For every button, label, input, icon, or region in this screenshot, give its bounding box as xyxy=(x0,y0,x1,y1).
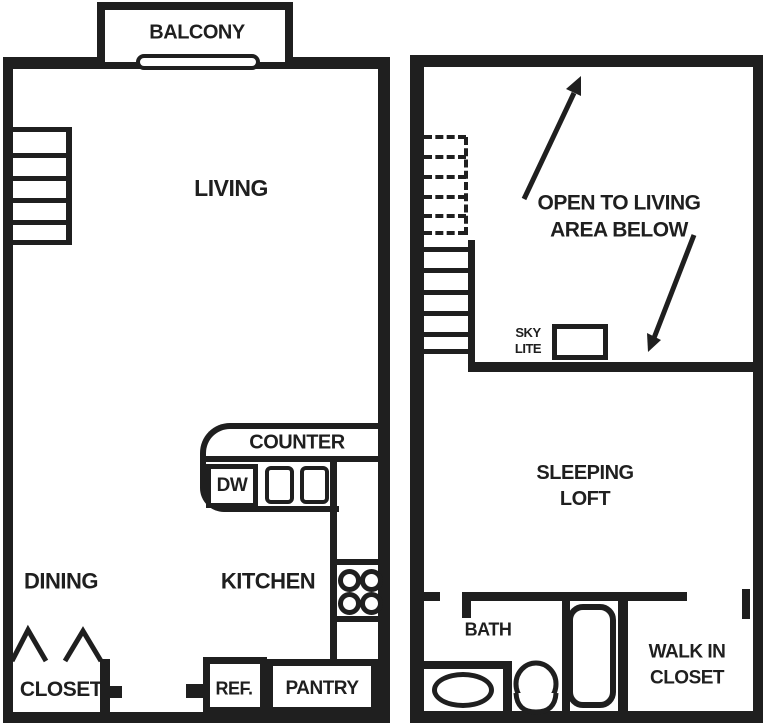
stairs-upper-dashed xyxy=(424,214,466,218)
door-jamb xyxy=(186,684,203,698)
stair-tread xyxy=(13,198,66,203)
door-jamb xyxy=(742,589,750,619)
refrigerator-label: REF. xyxy=(215,680,252,699)
stove-burner xyxy=(360,569,383,592)
open-to-living-label: OPEN TO LIVING AREA BELOW xyxy=(538,190,701,245)
stairs-upper-dashed xyxy=(424,135,466,139)
bath-counter-edge xyxy=(503,661,512,712)
closet-label: CLOSET xyxy=(20,679,102,701)
stair-tread xyxy=(13,153,66,158)
bath-label: BATH xyxy=(465,621,512,640)
balcony-label: BALCONY xyxy=(149,23,244,44)
stove-burner xyxy=(338,569,361,592)
stair-tread xyxy=(13,220,66,225)
walk-in-closet-label: WALK IN CLOSET xyxy=(649,639,726,690)
bath-wall-stub xyxy=(424,592,440,601)
stairs-upper-dashed xyxy=(424,175,466,179)
stair-tread xyxy=(424,332,468,337)
loft-wall xyxy=(468,362,753,372)
floor-plan-canvas: BALCONY LIVING COUNTER DW KITCHEN DINING… xyxy=(0,0,765,723)
stair-tread xyxy=(13,176,66,181)
sleeping-loft-label: SLEEPING LOFT xyxy=(536,460,633,512)
counter-strip-wall xyxy=(330,458,337,662)
dining-label: DINING xyxy=(24,569,98,592)
door-jamb xyxy=(462,592,471,618)
counter-label: COUNTER xyxy=(249,433,344,454)
stairs-lower xyxy=(13,127,72,245)
bath-wall xyxy=(471,592,687,601)
skylight-box xyxy=(552,324,608,360)
bath-sink xyxy=(432,672,494,708)
stairs-upper xyxy=(424,247,468,354)
stair-tread xyxy=(424,290,468,295)
stove-divider xyxy=(337,559,378,565)
stairs-upper-dashed-edge xyxy=(464,137,468,235)
stairs-upper-edge xyxy=(468,240,475,372)
kitchen-label: KITCHEN xyxy=(221,569,315,592)
stairs-upper-dashed xyxy=(424,195,466,199)
stove-divider xyxy=(337,616,378,622)
stair-tread xyxy=(424,311,468,316)
closet-divider-wall xyxy=(618,598,628,712)
sink-basin xyxy=(265,466,294,504)
living-label: LIVING xyxy=(194,176,268,200)
door-jamb xyxy=(110,686,122,698)
bath-counter-top xyxy=(424,661,504,669)
sink-basin xyxy=(300,466,329,504)
bathtub xyxy=(567,604,616,708)
dishwasher-label: DW xyxy=(217,476,248,496)
sliding-door xyxy=(136,54,260,70)
stair-tread xyxy=(424,268,468,273)
stairs-upper-dashed xyxy=(424,155,466,159)
pantry-label: PANTRY xyxy=(286,679,359,699)
stove-burner xyxy=(360,592,383,615)
skylight-label: SKY LITE xyxy=(515,325,541,358)
stairs-upper-dashed xyxy=(424,231,466,235)
stove-burner xyxy=(338,592,361,615)
